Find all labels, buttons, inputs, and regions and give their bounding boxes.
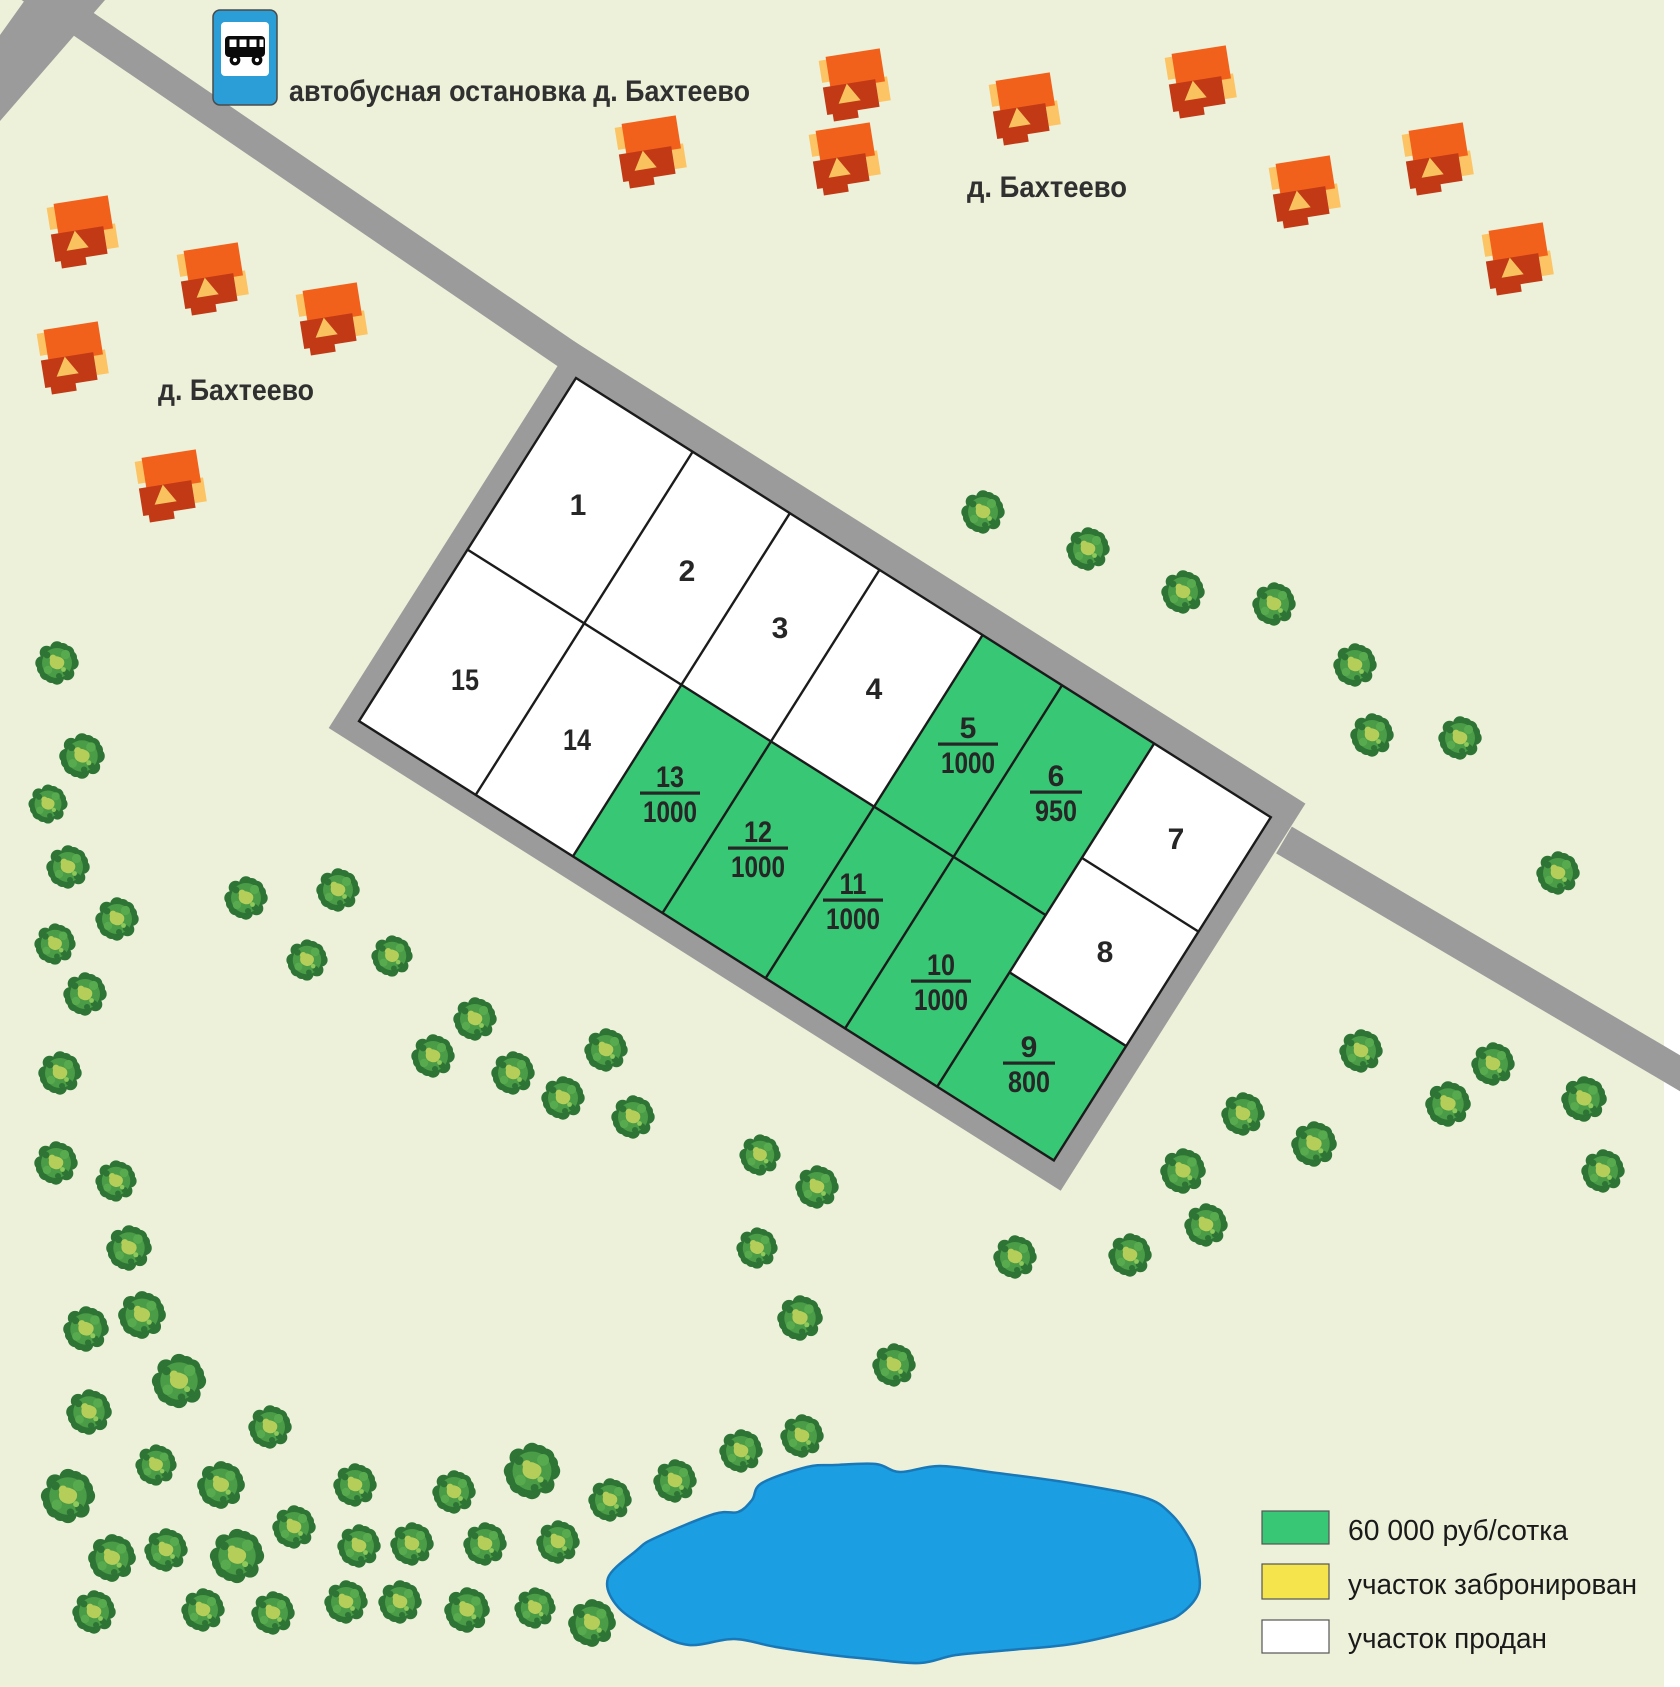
svg-text:800: 800 — [1008, 1066, 1050, 1099]
svg-text:1000: 1000 — [941, 747, 995, 780]
svg-text:8: 8 — [1097, 936, 1114, 969]
svg-text:2: 2 — [679, 555, 696, 588]
svg-text:1000: 1000 — [643, 796, 697, 829]
svg-text:4: 4 — [866, 673, 883, 706]
svg-text:14: 14 — [563, 724, 591, 757]
svg-text:3: 3 — [772, 612, 789, 645]
svg-text:6: 6 — [1048, 760, 1065, 793]
svg-text:участок забронирован: участок забронирован — [1348, 1569, 1637, 1601]
svg-text:12: 12 — [744, 816, 772, 849]
svg-text:1000: 1000 — [731, 851, 785, 884]
svg-text:11: 11 — [840, 868, 867, 901]
svg-text:1: 1 — [570, 489, 587, 522]
svg-text:д. Бахтеево: д. Бахтеево — [158, 374, 314, 407]
svg-text:13: 13 — [656, 761, 684, 794]
svg-text:участок продан: участок продан — [1348, 1623, 1547, 1655]
svg-text:автобусная остановка д. Бахтее: автобусная остановка д. Бахтеево — [289, 75, 750, 108]
svg-text:д. Бахтеево: д. Бахтеево — [967, 171, 1127, 204]
svg-text:5: 5 — [960, 712, 977, 745]
svg-text:1000: 1000 — [914, 984, 968, 1017]
svg-text:1000: 1000 — [826, 903, 880, 936]
svg-text:950: 950 — [1035, 795, 1077, 828]
svg-text:15: 15 — [451, 664, 479, 697]
svg-text:60 000 руб/сотка: 60 000 руб/сотка — [1348, 1515, 1569, 1547]
svg-text:9: 9 — [1021, 1031, 1038, 1064]
svg-text:10: 10 — [927, 949, 955, 982]
svg-text:7: 7 — [1168, 823, 1185, 856]
